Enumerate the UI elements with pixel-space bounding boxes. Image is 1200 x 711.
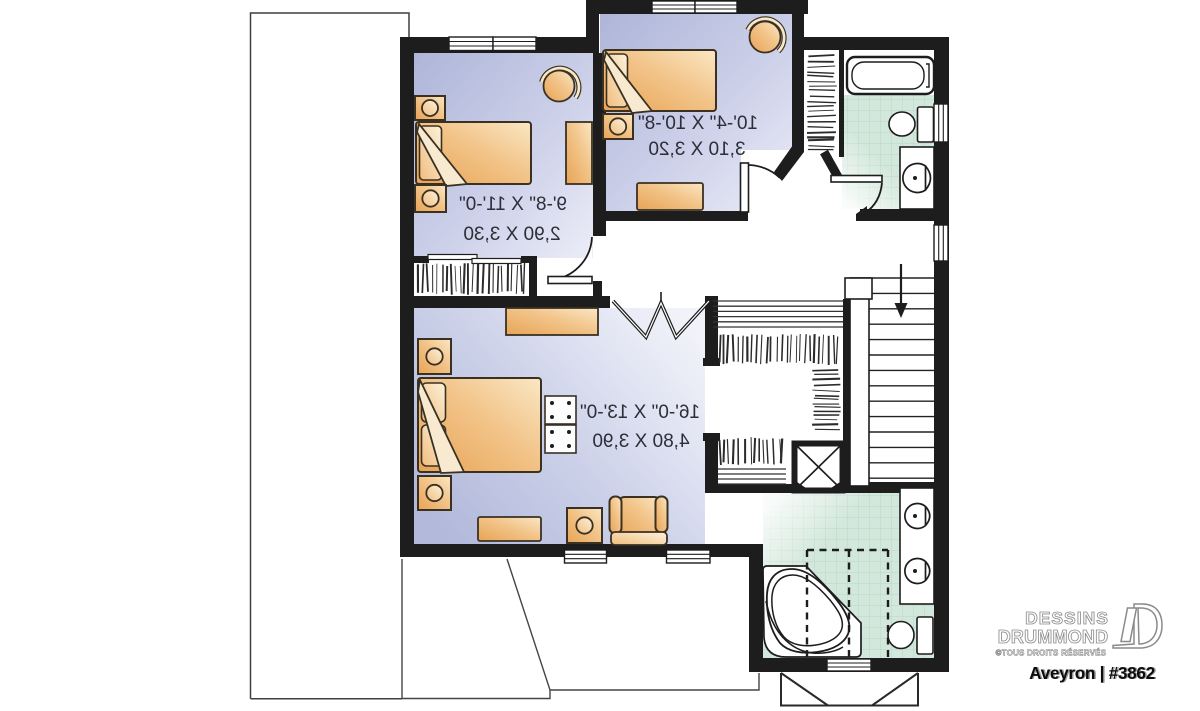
svg-text:9'-8" X 11'-0": 9'-8" X 11'-0" [459,194,567,215]
svg-text:4,80 X 3,90: 4,80 X 3,90 [592,431,689,452]
svg-text:16'-0" X 13'-0": 16'-0" X 13'-0" [580,402,700,423]
svg-text:DESSINS: DESSINS [1025,608,1109,628]
svg-text:©TOUS DROITS RÉSERVÉS: ©TOUS DROITS RÉSERVÉS [996,649,1107,658]
svg-text:DRUMMOND: DRUMMOND [998,627,1109,647]
svg-text:Aveyron | #3862: Aveyron | #3862 [1029,663,1155,683]
svg-text:2,90 X 3,30: 2,90 X 3,30 [463,224,560,245]
svg-text:10'-4" X 10'-8": 10'-4" X 10'-8" [638,113,758,134]
svg-text:3,10 X 3,20: 3,10 X 3,20 [648,139,745,160]
